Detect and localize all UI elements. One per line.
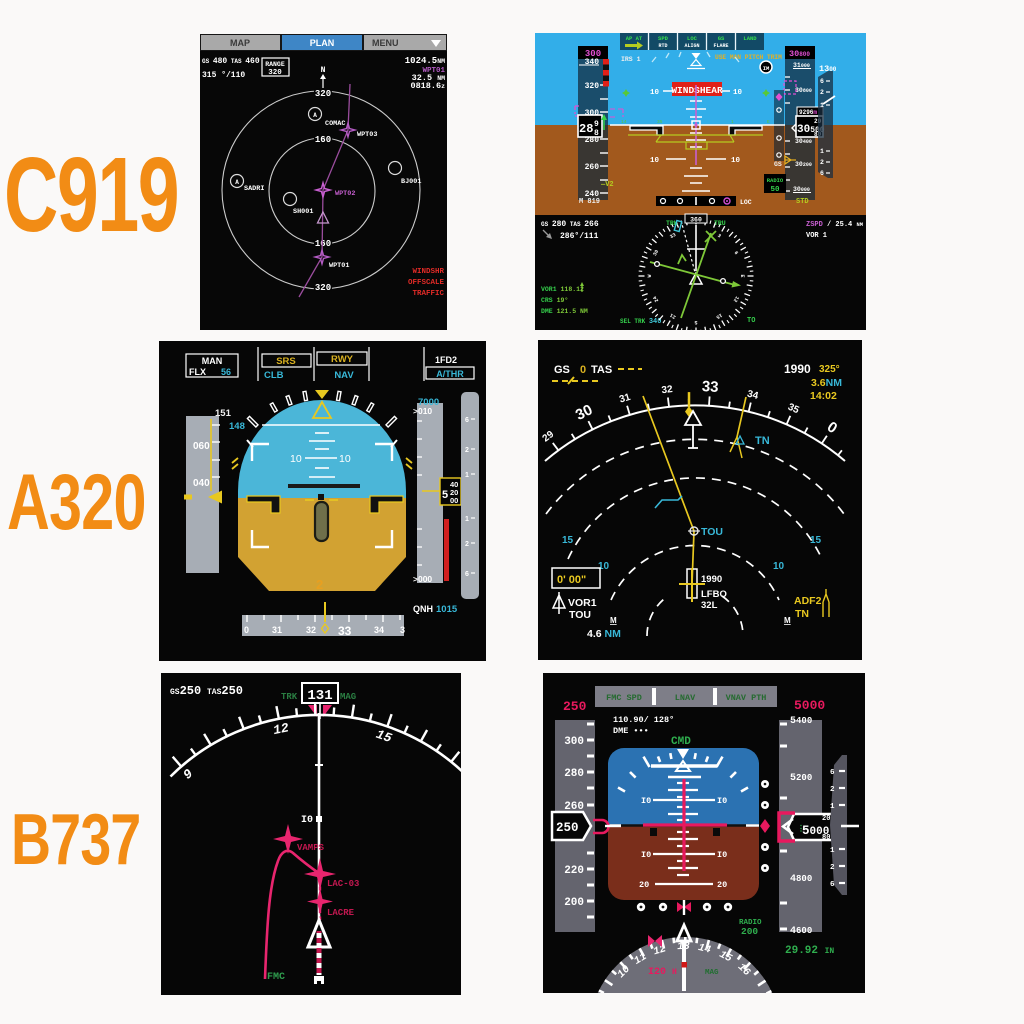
- svg-text:2: 2: [820, 159, 824, 166]
- svg-text:TRAFFIC: TRAFFIC: [412, 290, 444, 298]
- svg-text:>000: >000: [413, 574, 432, 584]
- svg-text:ZSPD / 25.4 NM: ZSPD / 25.4 NM: [806, 221, 864, 229]
- svg-text:0: 0: [244, 625, 249, 635]
- svg-text:1: 1: [830, 847, 835, 855]
- svg-text:250: 250: [556, 821, 579, 835]
- svg-text:1300: 1300: [819, 64, 837, 74]
- svg-text:S: S: [694, 319, 697, 325]
- svg-text:14:02: 14:02: [810, 390, 837, 402]
- svg-text:4600: 4600: [790, 926, 812, 937]
- svg-text:280: 280: [564, 768, 584, 780]
- svg-text:MAG: MAG: [705, 969, 719, 977]
- svg-text:GS: GS: [774, 161, 782, 168]
- svg-text:M 819: M 819: [579, 198, 600, 206]
- svg-text:10: 10: [650, 89, 660, 97]
- svg-text:LACRE: LACRE: [327, 908, 355, 918]
- svg-text:MENU: MENU: [372, 38, 399, 48]
- svg-text:4.6 NM: 4.6 NM: [587, 628, 621, 640]
- svg-text:148: 148: [229, 421, 245, 432]
- svg-text:320: 320: [585, 82, 600, 91]
- svg-text:1024.5NM: 1024.5NM: [405, 56, 445, 66]
- svg-text:TRU: TRU: [714, 220, 726, 227]
- svg-text:5400: 5400: [790, 716, 812, 727]
- svg-text:340: 340: [585, 58, 600, 67]
- svg-text:A: A: [313, 112, 317, 119]
- svg-text:15: 15: [562, 535, 574, 546]
- svg-text:0818.6z: 0818.6z: [410, 81, 445, 91]
- svg-text:315 °/110: 315 °/110: [202, 71, 245, 80]
- svg-text:GS: GS: [718, 35, 725, 42]
- svg-text:BJ001: BJ001: [401, 178, 421, 186]
- svg-text:6: 6: [830, 769, 835, 777]
- svg-text:>010: >010: [413, 406, 432, 416]
- svg-text:E: E: [767, 119, 770, 125]
- svg-text:30800: 30800: [789, 49, 810, 59]
- svg-text:56: 56: [221, 367, 231, 377]
- svg-text:TOU: TOU: [569, 609, 591, 621]
- svg-text:WPT03: WPT03: [357, 131, 377, 139]
- svg-text:30000: 30000: [793, 186, 810, 193]
- svg-text:12: 12: [272, 720, 290, 738]
- svg-text:4800: 4800: [790, 874, 812, 885]
- svg-text:6: 6: [830, 881, 835, 889]
- svg-text:2: 2: [465, 447, 469, 454]
- svg-text:LNAV: LNAV: [675, 693, 696, 703]
- svg-text:10: 10: [731, 157, 741, 165]
- svg-text:VOR 1: VOR 1: [806, 232, 827, 240]
- svg-text:1: 1: [830, 803, 835, 811]
- svg-text:1990: 1990: [701, 574, 722, 585]
- svg-text:300: 300: [564, 736, 584, 748]
- svg-text:SADRI: SADRI: [244, 185, 264, 193]
- svg-text:33: 33: [701, 378, 719, 396]
- svg-text:SPD: SPD: [658, 35, 669, 42]
- svg-text:A: A: [235, 179, 239, 186]
- svg-text:32: 32: [661, 384, 674, 396]
- svg-text:M: M: [784, 616, 791, 625]
- svg-text:320: 320: [315, 89, 331, 99]
- svg-text:LOC: LOC: [687, 35, 698, 42]
- svg-text:QNH: QNH: [413, 604, 433, 614]
- svg-text:SEL TRK 340: SEL TRK 340: [620, 318, 661, 326]
- svg-text:20: 20: [639, 880, 649, 890]
- svg-text:325°: 325°: [819, 364, 840, 375]
- svg-text:0' 00": 0' 00": [557, 574, 586, 586]
- svg-text:E: E: [739, 274, 745, 277]
- svg-text:3.6NM: 3.6NM: [811, 377, 842, 389]
- svg-text:131: 131: [307, 688, 332, 704]
- svg-text:I0: I0: [301, 815, 313, 826]
- svg-text:DME 121.5 NM: DME 121.5 NM: [541, 308, 588, 315]
- svg-text:WPT02: WPT02: [335, 190, 355, 198]
- svg-text:2: 2: [465, 541, 469, 548]
- svg-text:GS 480 TAS 460: GS 480 TAS 460: [202, 57, 260, 66]
- svg-text:360: 360: [690, 217, 702, 224]
- svg-text:14: 14: [621, 119, 627, 125]
- svg-text:28: 28: [579, 122, 593, 136]
- svg-text:COMAC: COMAC: [325, 120, 345, 128]
- svg-text:1: 1: [465, 516, 469, 523]
- svg-text:RADIO: RADIO: [767, 177, 784, 184]
- svg-text:LAND: LAND: [743, 35, 757, 42]
- svg-text:PLAN: PLAN: [310, 38, 335, 48]
- svg-text:ALIGN: ALIGN: [684, 43, 699, 49]
- svg-text:CLB: CLB: [264, 370, 284, 381]
- svg-text:320: 320: [268, 69, 282, 77]
- svg-text:9: 9: [594, 120, 599, 129]
- svg-text:FLARE: FLARE: [713, 43, 728, 49]
- svg-text:286°/111: 286°/111: [560, 232, 599, 241]
- svg-text:5: 5: [442, 489, 448, 501]
- svg-text:80: 80: [822, 834, 830, 842]
- svg-text:0: 0: [580, 364, 586, 376]
- svg-text:15: 15: [810, 535, 822, 546]
- svg-text:10: 10: [290, 453, 302, 465]
- svg-text:30400: 30400: [795, 138, 812, 145]
- svg-text:320: 320: [315, 283, 331, 293]
- svg-text:20: 20: [717, 880, 727, 890]
- svg-text:USE MAN PITCH TRIM: USE MAN PITCH TRIM: [715, 54, 782, 61]
- svg-text:TRK: TRK: [281, 692, 298, 702]
- svg-text:3: 3: [400, 625, 405, 635]
- svg-text:TO: TO: [747, 317, 755, 325]
- svg-text:—V2: —V2: [600, 181, 614, 189]
- svg-text:160: 160: [315, 135, 331, 145]
- svg-text:LFBO: LFBO: [701, 589, 727, 600]
- svg-text:6: 6: [820, 170, 824, 177]
- svg-text:ADF2: ADF2: [794, 595, 822, 607]
- svg-text:WINDSHR: WINDSHR: [412, 268, 444, 276]
- svg-text:FMC: FMC: [267, 972, 285, 983]
- svg-text:VOR1 118.12: VOR1 118.12: [541, 286, 584, 293]
- svg-text:I0: I0: [641, 850, 651, 860]
- svg-text:SH001: SH001: [293, 208, 313, 216]
- svg-text:IM: IM: [763, 65, 770, 72]
- svg-text:TN: TN: [755, 435, 770, 447]
- svg-text:151: 151: [215, 408, 232, 419]
- svg-text:OFFSCALE: OFFSCALE: [408, 279, 445, 287]
- svg-text:260: 260: [585, 163, 600, 172]
- svg-text:2: 2: [830, 786, 835, 794]
- svg-text:6: 6: [465, 571, 469, 578]
- svg-text:MAP: MAP: [230, 38, 250, 48]
- svg-text:2: 2: [820, 89, 824, 96]
- svg-text:35: 35: [657, 119, 663, 125]
- svg-text:060: 060: [193, 441, 210, 452]
- svg-text:1015: 1015: [436, 604, 458, 615]
- svg-text:2: 2: [316, 577, 323, 592]
- svg-text:29.92 IN: 29.92 IN: [785, 945, 834, 957]
- svg-text:IRS 1: IRS 1: [621, 56, 641, 63]
- svg-text:CRS 19°: CRS 19°: [541, 296, 568, 304]
- svg-text:TAS: TAS: [591, 364, 612, 376]
- svg-text:160: 160: [315, 239, 331, 249]
- svg-text:CMD: CMD: [671, 736, 691, 748]
- svg-text:I20 H: I20 H: [648, 967, 677, 978]
- svg-text:5000: 5000: [794, 698, 825, 713]
- svg-text:30800: 30800: [795, 87, 812, 94]
- svg-text:W: W: [647, 274, 653, 277]
- svg-text:FMC SPD: FMC SPD: [606, 693, 642, 703]
- svg-text:220: 220: [564, 865, 584, 877]
- svg-text:110.90/ 128°: 110.90/ 128°: [613, 715, 674, 725]
- svg-text:I0: I0: [717, 796, 727, 806]
- svg-text:1990: 1990: [784, 362, 811, 376]
- svg-text:1: 1: [731, 119, 734, 125]
- svg-text:VNAV PTH: VNAV PTH: [726, 693, 767, 703]
- svg-text:N: N: [321, 66, 326, 75]
- svg-text:WPT01: WPT01: [329, 262, 349, 270]
- svg-text:10: 10: [650, 157, 660, 165]
- svg-text:31: 31: [272, 625, 282, 635]
- svg-text:1FD2: 1FD2: [435, 355, 457, 365]
- svg-text:LOC: LOC: [740, 199, 752, 206]
- svg-text:GS: GS: [554, 364, 570, 376]
- svg-text:A/THR: A/THR: [436, 369, 464, 379]
- svg-text:8: 8: [594, 129, 599, 138]
- svg-text:34: 34: [374, 625, 384, 635]
- svg-text:RANGE: RANGE: [265, 61, 285, 68]
- svg-text:I0: I0: [717, 850, 727, 860]
- svg-text:1: 1: [465, 472, 469, 479]
- svg-text:STD: STD: [796, 198, 809, 206]
- svg-text:VAMPS: VAMPS: [297, 843, 325, 853]
- svg-text:I0: I0: [641, 796, 651, 806]
- svg-text:M: M: [610, 616, 617, 625]
- svg-text:MAG: MAG: [340, 692, 356, 702]
- svg-text:VOR1: VOR1: [568, 597, 597, 609]
- svg-text:SRS: SRS: [276, 356, 296, 367]
- svg-text:31000: 31000: [793, 62, 810, 69]
- svg-text:RWY: RWY: [331, 354, 354, 365]
- svg-text:DME •••: DME •••: [613, 726, 649, 736]
- svg-text:9296m: 9296m: [799, 109, 817, 116]
- svg-text:200: 200: [564, 897, 584, 909]
- svg-text:GS 280 TAS 266: GS 280 TAS 266: [541, 220, 599, 229]
- svg-text:6: 6: [465, 417, 469, 424]
- svg-text:AP AT: AP AT: [626, 35, 643, 42]
- svg-text:RTD: RTD: [658, 43, 667, 49]
- svg-text:TOU: TOU: [701, 526, 723, 538]
- svg-text:32: 32: [306, 625, 316, 635]
- svg-text:10: 10: [773, 561, 785, 572]
- svg-text:TN: TN: [795, 608, 809, 620]
- svg-text:32L: 32L: [701, 600, 718, 611]
- svg-text:20: 20: [822, 815, 830, 823]
- svg-text:10: 10: [733, 89, 743, 97]
- svg-text:MAN: MAN: [202, 356, 223, 366]
- svg-text:30200: 30200: [795, 161, 812, 168]
- svg-text:LAC-03: LAC-03: [327, 879, 359, 889]
- svg-text:6: 6: [820, 78, 824, 85]
- svg-text:WINDSHEAR: WINDSHEAR: [671, 85, 723, 96]
- svg-text:NAV: NAV: [334, 370, 354, 381]
- svg-text:5200: 5200: [790, 773, 812, 784]
- svg-text:2: 2: [830, 864, 835, 872]
- svg-text:FLX: FLX: [189, 367, 206, 377]
- svg-text:040: 040: [193, 478, 210, 489]
- svg-text:00: 00: [450, 496, 458, 505]
- svg-text:200: 200: [741, 926, 758, 937]
- svg-text:33: 33: [338, 624, 352, 638]
- svg-text:10: 10: [339, 453, 351, 465]
- svg-text:50: 50: [770, 186, 780, 194]
- svg-text:250: 250: [563, 699, 587, 714]
- svg-text:1: 1: [820, 148, 824, 155]
